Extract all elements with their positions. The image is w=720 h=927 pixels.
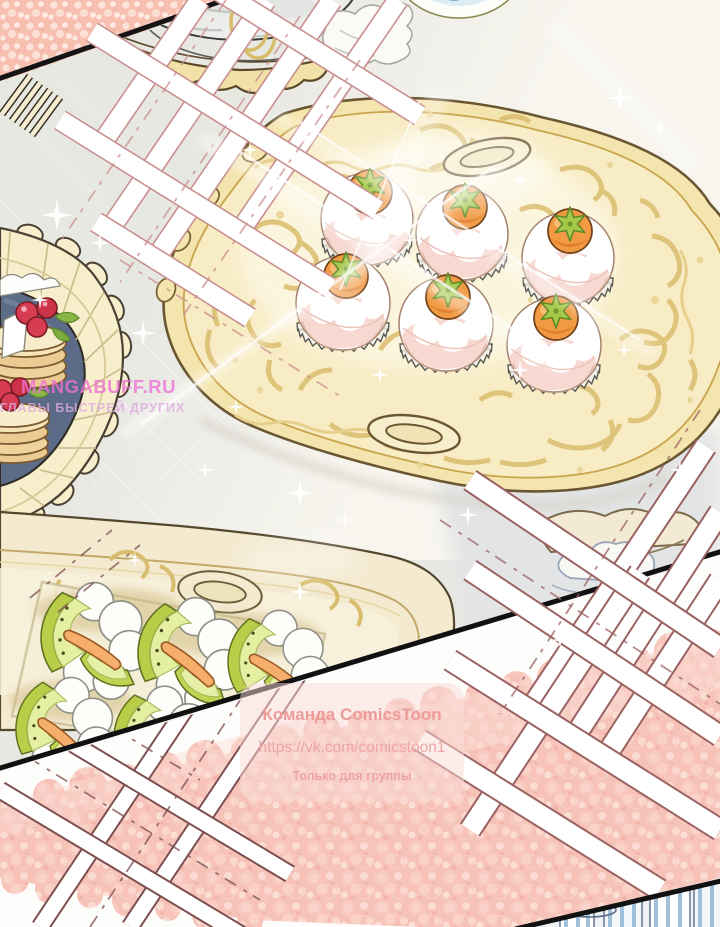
svg-text:MANGABUFF.RU: MANGABUFF.RU xyxy=(21,376,176,397)
svg-text:Команда ComicsToon: Команда ComicsToon xyxy=(262,705,441,724)
svg-text:https://vk.com/comicstoon1: https://vk.com/comicstoon1 xyxy=(259,739,446,756)
svg-text:ГЛАВЫ БЫСТРЕЙ ДРУГИХ: ГЛАВЫ БЫСТРЕЙ ДРУГИХ xyxy=(0,400,185,415)
svg-text:Только для группы: Только для группы xyxy=(292,769,411,783)
